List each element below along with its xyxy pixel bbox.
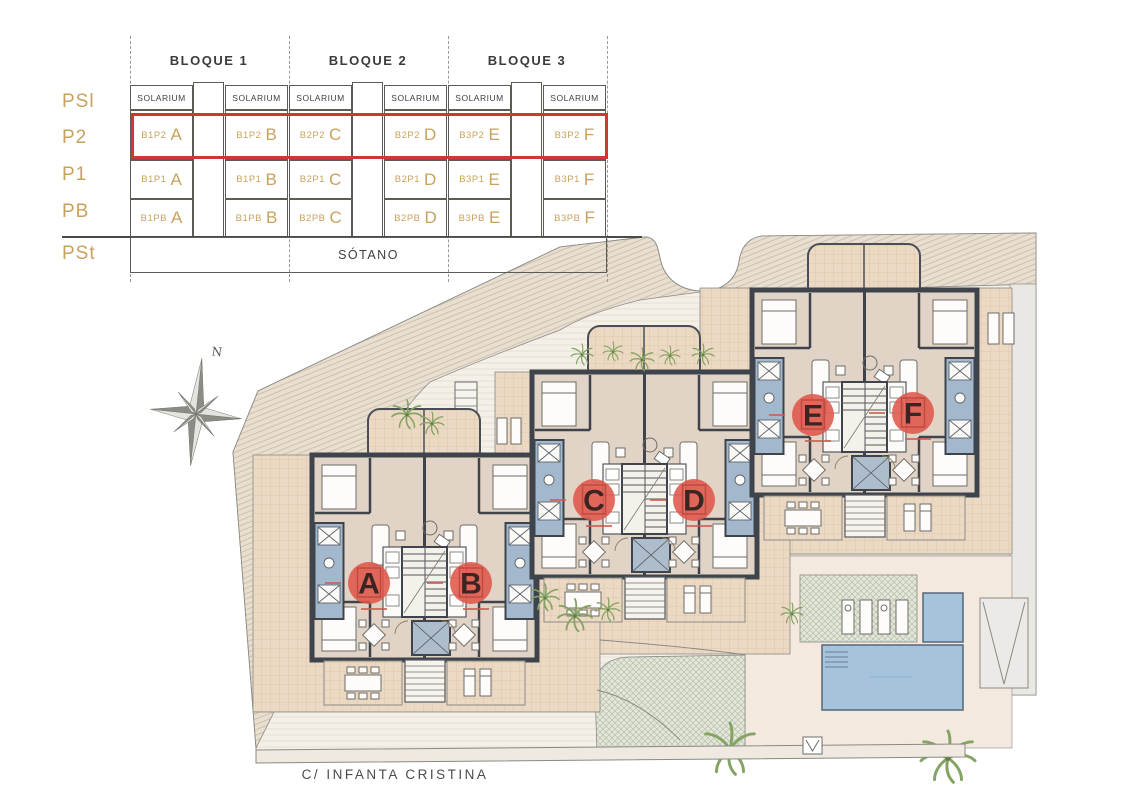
unit-cell-B2PB-C[interactable]: B2PBC (289, 199, 352, 237)
unit-letter: B (266, 208, 277, 228)
kids-pool (923, 593, 963, 642)
unit-code: B1P1 (236, 174, 261, 185)
unit-cell-B3PB-F[interactable]: B3PBF (543, 199, 606, 237)
unit-letter: F (584, 208, 594, 228)
unit-code: B3P2 (555, 130, 580, 141)
unit-cell-B3P1-E[interactable]: B3P1E (448, 160, 511, 199)
street-label: C/ INFANTA CRISTINA (302, 767, 489, 782)
unit-cell-B1P1-B[interactable]: B1P1B (225, 160, 288, 199)
building-block-1 (312, 409, 537, 705)
unit-cell-B3P2-E[interactable]: B3P2E (448, 110, 511, 160)
north-label: N (211, 344, 223, 359)
unit-letter: F (584, 170, 594, 190)
garage-ramp (980, 598, 1028, 688)
unit-letter: A (171, 208, 182, 228)
street-entry-marker (803, 737, 822, 754)
unit-letter: C (329, 125, 341, 145)
unit-code: B2P2 (395, 130, 420, 141)
unit-marker-letter: C (583, 485, 605, 518)
unit-cell-B2P2-D[interactable]: B2P2D (384, 110, 447, 160)
unit-cell-B2P1-D[interactable]: B2P1D (384, 160, 447, 199)
unit-letter: D (425, 208, 437, 228)
unit-cell-B1P2-A[interactable]: B1P2A (130, 110, 193, 160)
unit-marker-letter: E (803, 400, 823, 433)
unit-cell-B2P2-C[interactable]: B2P2C (289, 110, 352, 160)
unit-letter: D (424, 170, 436, 190)
unit-letter: B (265, 125, 276, 145)
unit-code: B2P2 (300, 130, 325, 141)
unit-marker-letter: F (904, 398, 922, 431)
unit-cell-B1P2-B[interactable]: B1P2B (225, 110, 288, 160)
swimming-pool (822, 645, 963, 710)
unit-cell-B1PB-A[interactable]: B1PBA (130, 199, 193, 237)
unit-code: B3P1 (459, 174, 484, 185)
unit-letter: A (170, 125, 181, 145)
unit-letter: F (584, 125, 594, 145)
unit-cell-B1PB-B[interactable]: B1PBB (225, 199, 288, 237)
unit-code: B3P1 (555, 174, 580, 185)
floorplan-page: C/ INFANTA CRISTINA N ABCDEF PSlP2P1PBPS… (0, 0, 1132, 800)
unit-code: B1P2 (141, 130, 166, 141)
unit-letter: E (488, 170, 499, 190)
building-block-3 (752, 244, 977, 540)
unit-letter: B (265, 170, 276, 190)
unit-marker-letter: D (683, 485, 705, 518)
unit-marker-letter: B (460, 568, 482, 601)
unit-code: B2P1 (395, 174, 420, 185)
unit-code: B1PB (141, 213, 167, 224)
unit-code: B1PB (236, 213, 262, 224)
unit-letter: E (489, 208, 500, 228)
unit-cell-B3PB-E[interactable]: B3PBE (448, 199, 511, 237)
unit-code: B3PB (554, 213, 580, 224)
unit-code: B3PB (459, 213, 485, 224)
unit-code: B2P1 (300, 174, 325, 185)
garden-area (595, 655, 745, 752)
unit-letter: D (424, 125, 436, 145)
unit-code: B2PB (299, 213, 325, 224)
unit-letter: E (488, 125, 499, 145)
unit-cell-B1P1-A[interactable]: B1P1A (130, 160, 193, 199)
unit-code: B1P2 (236, 130, 261, 141)
unit-cell-B2P1-C[interactable]: B2P1C (289, 160, 352, 199)
unit-letter: C (330, 208, 342, 228)
unit-code: B2PB (394, 213, 420, 224)
unit-cell-B3P1-F[interactable]: B3P1F (543, 160, 606, 199)
unit-code: B1P1 (141, 174, 166, 185)
unit-letter: A (170, 170, 181, 190)
unit-marker-letter: A (358, 568, 380, 601)
unit-letter: C (329, 170, 341, 190)
unit-cell-B2PB-D[interactable]: B2PBD (384, 199, 447, 237)
unit-cell-B3P2-F[interactable]: B3P2F (543, 110, 606, 160)
unit-code: B3P2 (459, 130, 484, 141)
